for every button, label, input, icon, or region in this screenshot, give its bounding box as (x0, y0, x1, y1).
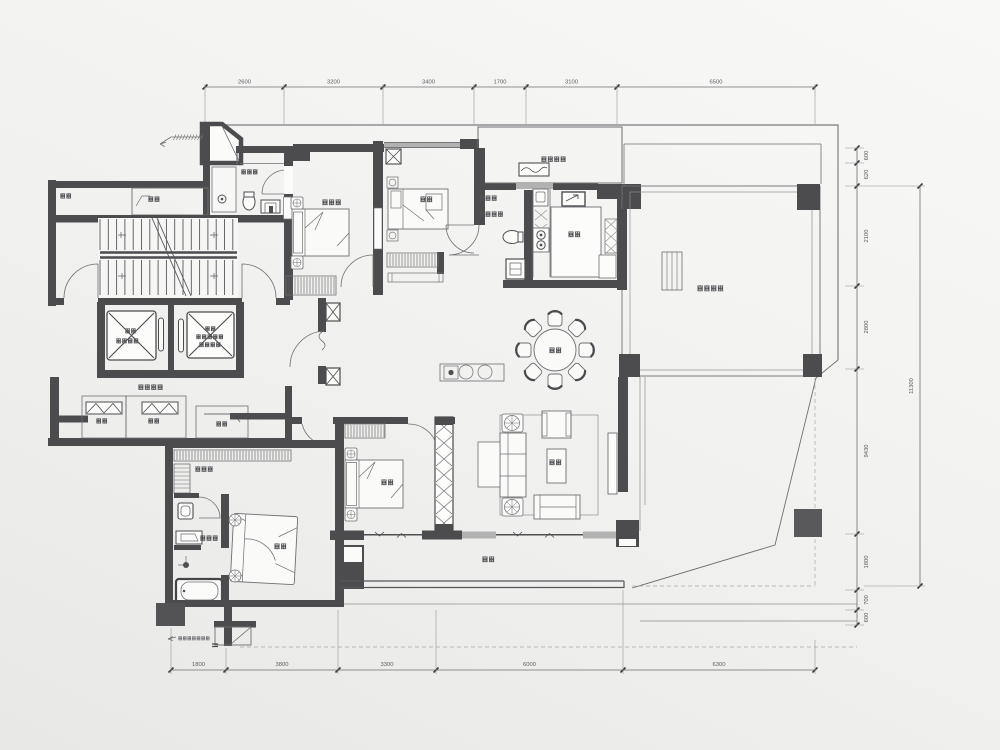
svg-text:9430: 9430 (864, 445, 870, 458)
svg-text:600: 600 (864, 613, 870, 623)
svg-text:6000: 6000 (523, 662, 536, 668)
svg-text:1800: 1800 (864, 556, 870, 569)
svg-text:6300: 6300 (713, 662, 726, 668)
svg-text:2100: 2100 (864, 230, 870, 243)
svg-text:3200: 3200 (327, 80, 340, 86)
svg-text:11300: 11300 (909, 378, 915, 394)
svg-text:1800: 1800 (192, 662, 205, 668)
svg-text:6500: 6500 (710, 80, 723, 86)
svg-text:2800: 2800 (864, 321, 870, 334)
svg-text:620: 620 (864, 170, 870, 180)
svg-text:3400: 3400 (422, 80, 435, 86)
svg-text:3300: 3300 (381, 662, 394, 668)
svg-text:700: 700 (864, 595, 870, 605)
svg-text:2600: 2600 (238, 80, 251, 86)
svg-text:3800: 3800 (276, 662, 289, 668)
svg-text:1700: 1700 (494, 80, 507, 86)
svg-text:3100: 3100 (565, 80, 578, 86)
svg-text:600: 600 (864, 151, 870, 161)
